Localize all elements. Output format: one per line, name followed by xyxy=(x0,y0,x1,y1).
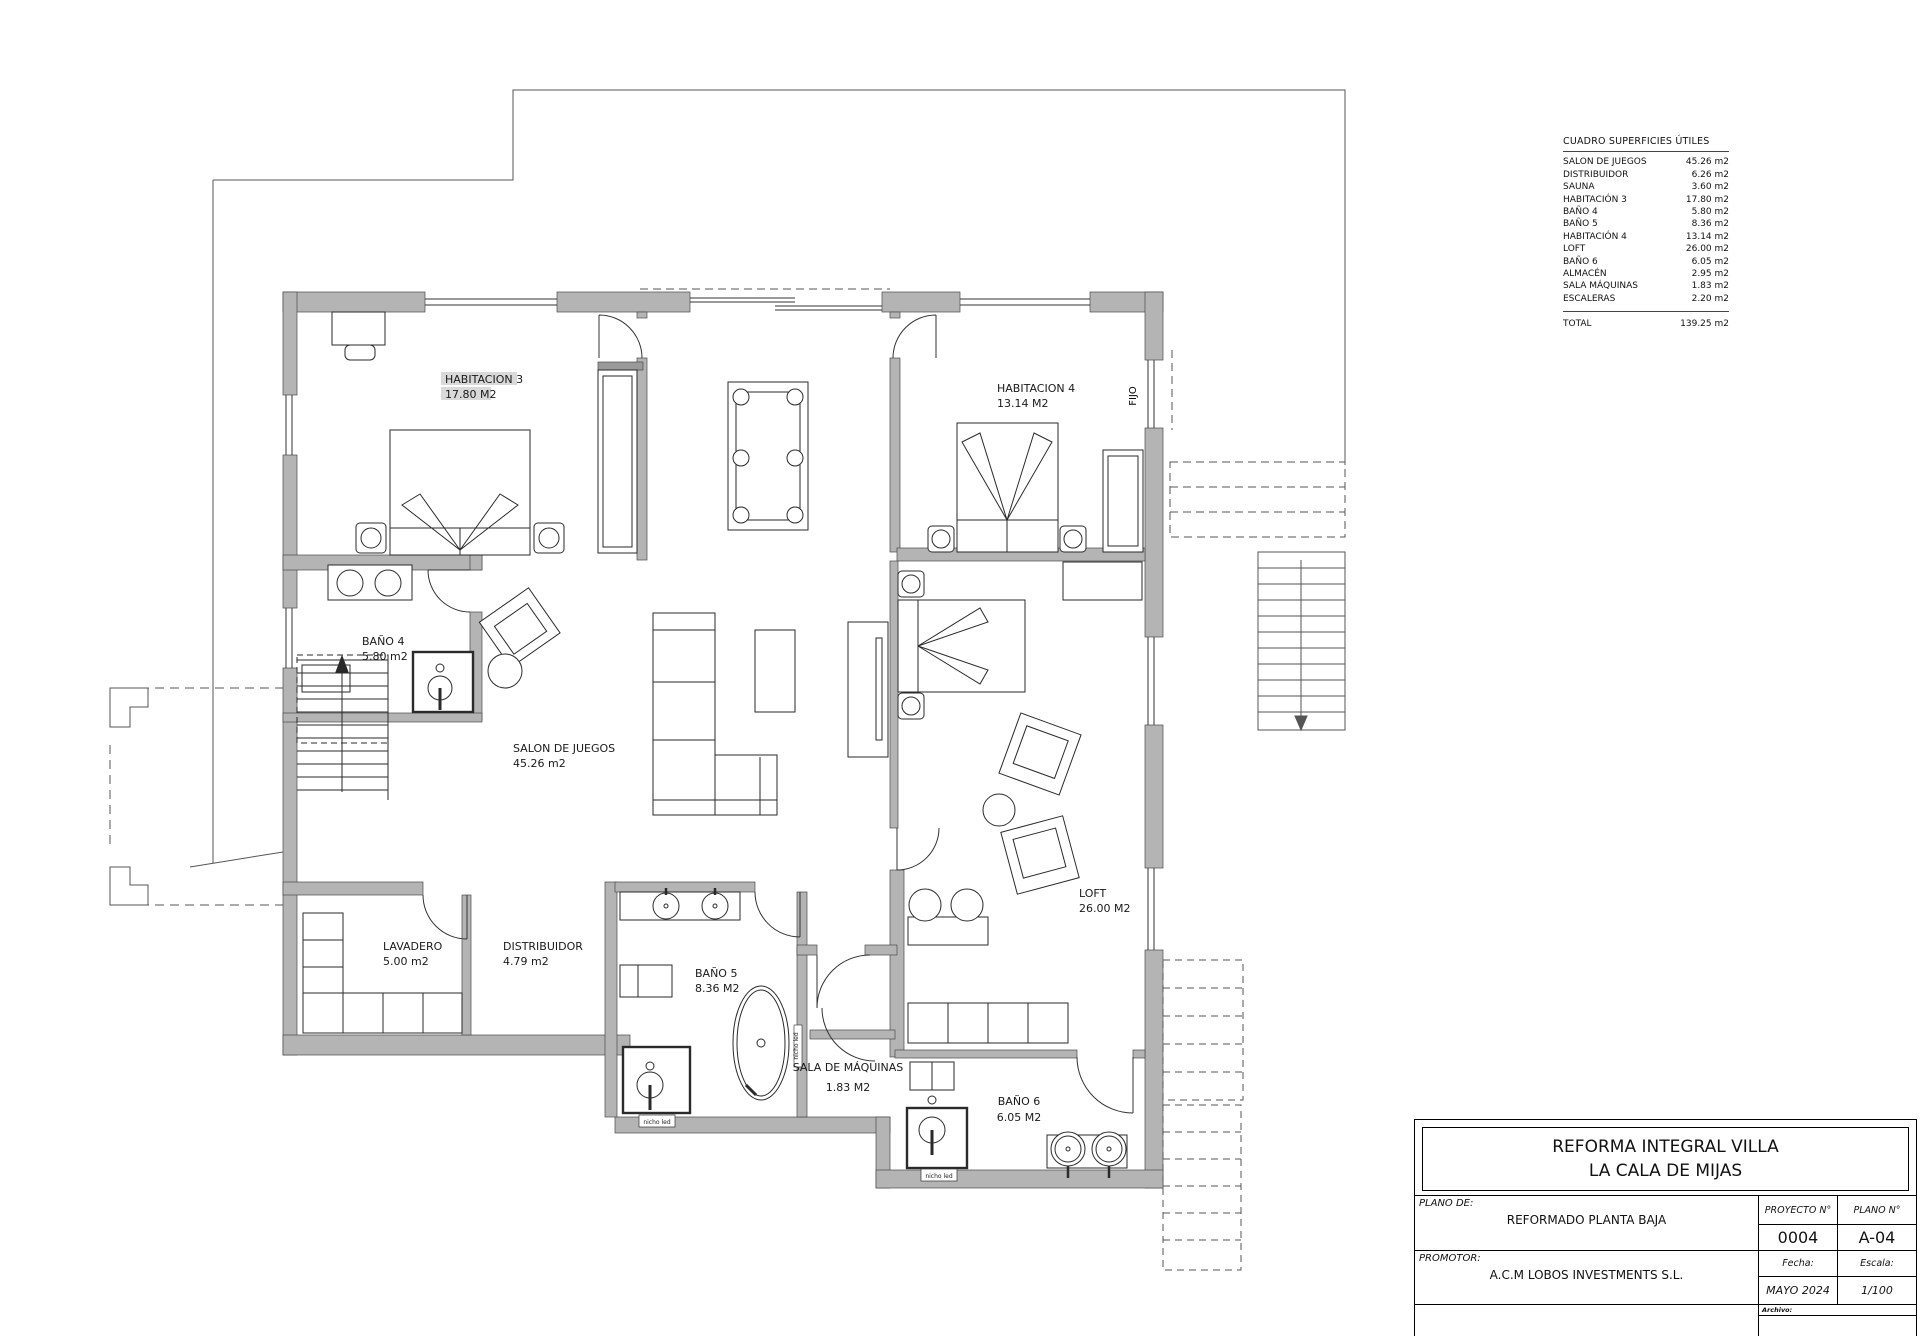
row-value: 13.14 m2 xyxy=(1686,231,1729,243)
plano-num-label: PLANO N° xyxy=(1838,1196,1916,1224)
plano-de-value: REFORMADO PLANTA BAJA xyxy=(1415,1213,1758,1227)
escala-label: Escala: xyxy=(1838,1251,1916,1276)
row-name: HABITACIÓN 4 xyxy=(1563,231,1627,243)
room-label-habitacion4: HABITACION 4 xyxy=(997,382,1075,395)
stairs-exterior-bottom xyxy=(1163,960,1243,1270)
table-row: BAÑO 58.36 m2 xyxy=(1563,218,1729,230)
table-row: SALON DE JUEGOS45.26 m2 xyxy=(1563,156,1729,168)
table-row: HABITACIÓN 317.80 m2 xyxy=(1563,194,1729,206)
pergola-deck xyxy=(1170,462,1345,537)
proyecto-value: 0004 xyxy=(1759,1225,1837,1250)
loft-closet xyxy=(1063,562,1142,600)
room-label-salon: SALON DE JUEGOS xyxy=(513,742,615,755)
surface-table-title: CUADRO SUPERFICIES ÚTILES xyxy=(1563,136,1729,148)
side-table xyxy=(983,794,1015,826)
promotor-label: PROMOTOR: xyxy=(1415,1251,1758,1266)
archivo-empty-cell xyxy=(1758,1315,1917,1336)
bathtub xyxy=(733,986,789,1100)
surface-table: CUADRO SUPERFICIES ÚTILES SALON DE JUEGO… xyxy=(1563,136,1729,331)
project-title-line2: LA CALA DE MIJAS xyxy=(1589,1161,1742,1181)
desk-chair xyxy=(345,345,375,360)
fecha-header-cell: Fecha: xyxy=(1758,1250,1838,1277)
plano-de-label: PLANO DE: xyxy=(1415,1196,1758,1211)
divider xyxy=(1563,151,1729,152)
bed-loft xyxy=(898,600,1025,692)
proyecto-label: PROYECTO N° xyxy=(1759,1196,1837,1224)
empty-cell xyxy=(1414,1304,1759,1336)
armchair-loft xyxy=(1001,816,1079,894)
plano-de-cell: PLANO DE: REFORMADO PLANTA BAJA xyxy=(1414,1195,1759,1251)
row-value: 1.83 m2 xyxy=(1692,280,1729,292)
proyecto-header-cell: PROYECTO N° xyxy=(1758,1195,1838,1225)
row-name: ALMACÉN xyxy=(1563,268,1607,280)
nicho-led-label: nicho led xyxy=(793,1032,800,1060)
row-name: SAUNA xyxy=(1563,181,1595,193)
title-block: REFORMA INTEGRAL VILLA LA CALA DE MIJAS … xyxy=(1414,1119,1917,1336)
room-area-bano5: 8.36 M2 xyxy=(695,982,739,995)
room-area-loft: 26.00 M2 xyxy=(1079,902,1130,915)
row-value: 6.26 m2 xyxy=(1692,169,1729,181)
row-name: BAÑO 4 xyxy=(1563,206,1598,218)
room-area-lavadero: 5.00 m2 xyxy=(383,955,429,968)
row-name: HABITACIÓN 3 xyxy=(1563,194,1627,206)
exterior-structures xyxy=(1163,462,1345,1270)
archivo-label: Archivo: xyxy=(1759,1305,1916,1315)
room-label-habitacion3: HABITACION 3 xyxy=(445,373,523,386)
row-name: SALA MÁQUINAS xyxy=(1563,280,1638,292)
promotor-value: A.C.M LOBOS INVESTMENTS S.L. xyxy=(1415,1268,1758,1282)
room-label-bano5: BAÑO 5 xyxy=(695,967,737,980)
table-total-row: TOTAL 139.25 m2 xyxy=(1563,318,1729,330)
room-label-bano4: BAÑO 4 xyxy=(362,635,404,648)
row-name: BAÑO 6 xyxy=(1563,256,1598,268)
wardrobe-hab4 xyxy=(1103,450,1143,552)
row-name: LOFT xyxy=(1563,243,1585,255)
table-row: ESCALERAS2.20 m2 xyxy=(1563,293,1729,305)
nicho-led-label: nicho led xyxy=(925,1173,953,1180)
room-label-bano6: BAÑO 6 xyxy=(998,1095,1040,1108)
loft-vanity xyxy=(908,889,988,945)
desk xyxy=(332,312,385,345)
escala-value-cell: 1/100 xyxy=(1837,1276,1917,1305)
room-label-distribuidor: DISTRIBUIDOR xyxy=(503,940,583,953)
bano5-vanity xyxy=(620,888,740,920)
pouf xyxy=(488,654,522,688)
row-name: SALON DE JUEGOS xyxy=(1563,156,1647,168)
wardrobe-hab3 xyxy=(598,370,637,553)
floor-plan-sheet: HABITACION 3 17.80 M2 HABITACION 4 13.14… xyxy=(0,0,1920,1336)
row-value: 2.95 m2 xyxy=(1692,268,1729,280)
row-value: 45.26 m2 xyxy=(1686,156,1729,168)
row-value: 26.00 m2 xyxy=(1686,243,1729,255)
room-area-habitacion4: 13.14 M2 xyxy=(997,397,1048,410)
row-name: BAÑO 5 xyxy=(1563,218,1598,230)
nicho-led-label: nicho led xyxy=(643,1119,671,1126)
row-value: 3.60 m2 xyxy=(1692,181,1729,193)
tv-wall xyxy=(848,622,888,757)
room-label-sala-maquinas: SALA DE MÁQUINAS xyxy=(793,1061,904,1074)
row-value: 2.20 m2 xyxy=(1692,293,1729,305)
room-area-sala-maquinas: 1.83 M2 xyxy=(826,1081,870,1094)
row-value: 8.36 m2 xyxy=(1692,218,1729,230)
room-area-habitacion3: 17.80 M2 xyxy=(445,388,496,401)
plano-num-value-cell: A-04 xyxy=(1837,1224,1917,1251)
fecha-value-cell: MAYO 2024 xyxy=(1758,1276,1838,1305)
room-area-salon: 45.26 m2 xyxy=(513,757,566,770)
table-row: BAÑO 66.05 m2 xyxy=(1563,256,1729,268)
fijo-window-label: FIJO xyxy=(1128,386,1139,406)
proyecto-value-cell: 0004 xyxy=(1758,1224,1838,1251)
fecha-label: Fecha: xyxy=(1759,1251,1837,1276)
table-row: ALMACÉN2.95 m2 xyxy=(1563,268,1729,280)
escala-header-cell: Escala: xyxy=(1837,1250,1917,1277)
divider xyxy=(1563,311,1729,312)
room-area-bano6: 6.05 M2 xyxy=(997,1111,1041,1124)
table-row: BAÑO 45.80 m2 xyxy=(1563,206,1729,218)
armchair-salon xyxy=(479,588,560,667)
escala-value: 1/100 xyxy=(1838,1277,1916,1304)
room-label-lavadero: LAVADERO xyxy=(383,940,443,953)
room-label-loft: LOFT xyxy=(1079,887,1107,900)
coffee-table xyxy=(755,630,795,712)
plano-num-header-cell: PLANO N° xyxy=(1837,1195,1917,1225)
loft-wardrobe-row xyxy=(908,1003,1068,1043)
fecha-value: MAYO 2024 xyxy=(1759,1277,1837,1304)
project-title-line1: REFORMA INTEGRAL VILLA xyxy=(1552,1137,1779,1157)
armchair-loft xyxy=(999,713,1081,795)
room-area-bano4: 5.80 m2 xyxy=(362,650,408,663)
room-area-distribuidor: 4.79 m2 xyxy=(503,955,549,968)
table-row: DISTRIBUIDOR6.26 m2 xyxy=(1563,169,1729,181)
row-value: 5.80 m2 xyxy=(1692,206,1729,218)
pool-table xyxy=(728,382,808,530)
table-row: HABITACIÓN 413.14 m2 xyxy=(1563,231,1729,243)
total-label: TOTAL xyxy=(1563,318,1592,330)
row-value: 17.80 m2 xyxy=(1686,194,1729,206)
table-row: SAUNA3.60 m2 xyxy=(1563,181,1729,193)
row-name: DISTRIBUIDOR xyxy=(1563,169,1628,181)
stairs-exterior-right xyxy=(1258,552,1345,730)
bano5-bench xyxy=(620,965,672,997)
promotor-cell: PROMOTOR: A.C.M LOBOS INVESTMENTS S.L. xyxy=(1414,1250,1759,1305)
table-row: LOFT26.00 m2 xyxy=(1563,243,1729,255)
total-value: 139.25 m2 xyxy=(1680,318,1729,330)
plano-num-value: A-04 xyxy=(1838,1225,1916,1250)
title-block-header: REFORMA INTEGRAL VILLA LA CALA DE MIJAS xyxy=(1422,1127,1909,1191)
row-value: 6.05 m2 xyxy=(1692,256,1729,268)
table-row: SALA MÁQUINAS1.83 m2 xyxy=(1563,280,1729,292)
lavadero-cabinets xyxy=(303,913,462,1033)
row-name: ESCALERAS xyxy=(1563,293,1615,305)
